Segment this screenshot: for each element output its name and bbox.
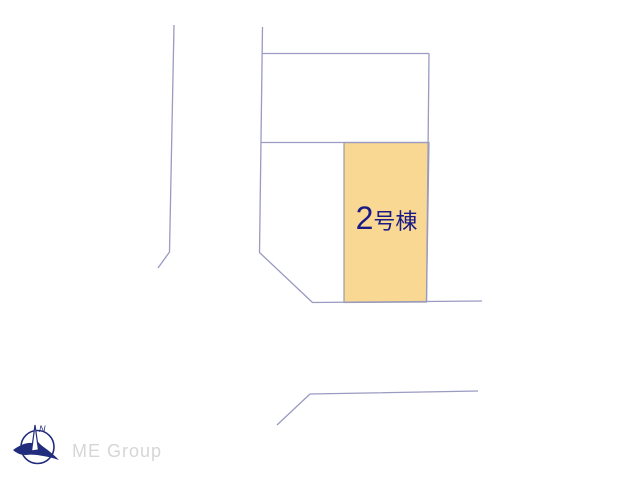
site-plan-drawing xyxy=(0,0,640,480)
left-road-boundary-line xyxy=(158,25,174,268)
company-name: ME Group xyxy=(72,441,162,462)
compass-north-bird-icon: N xyxy=(12,419,62,471)
north-needle xyxy=(32,425,39,451)
bottom-road-boundary-line xyxy=(277,391,478,425)
company-logo: N ME Group xyxy=(12,419,162,471)
site-plan-page: 2号棟 N ME Group xyxy=(0,0,640,480)
north-letter: N xyxy=(39,424,46,434)
parcel-2-shape xyxy=(344,143,429,303)
